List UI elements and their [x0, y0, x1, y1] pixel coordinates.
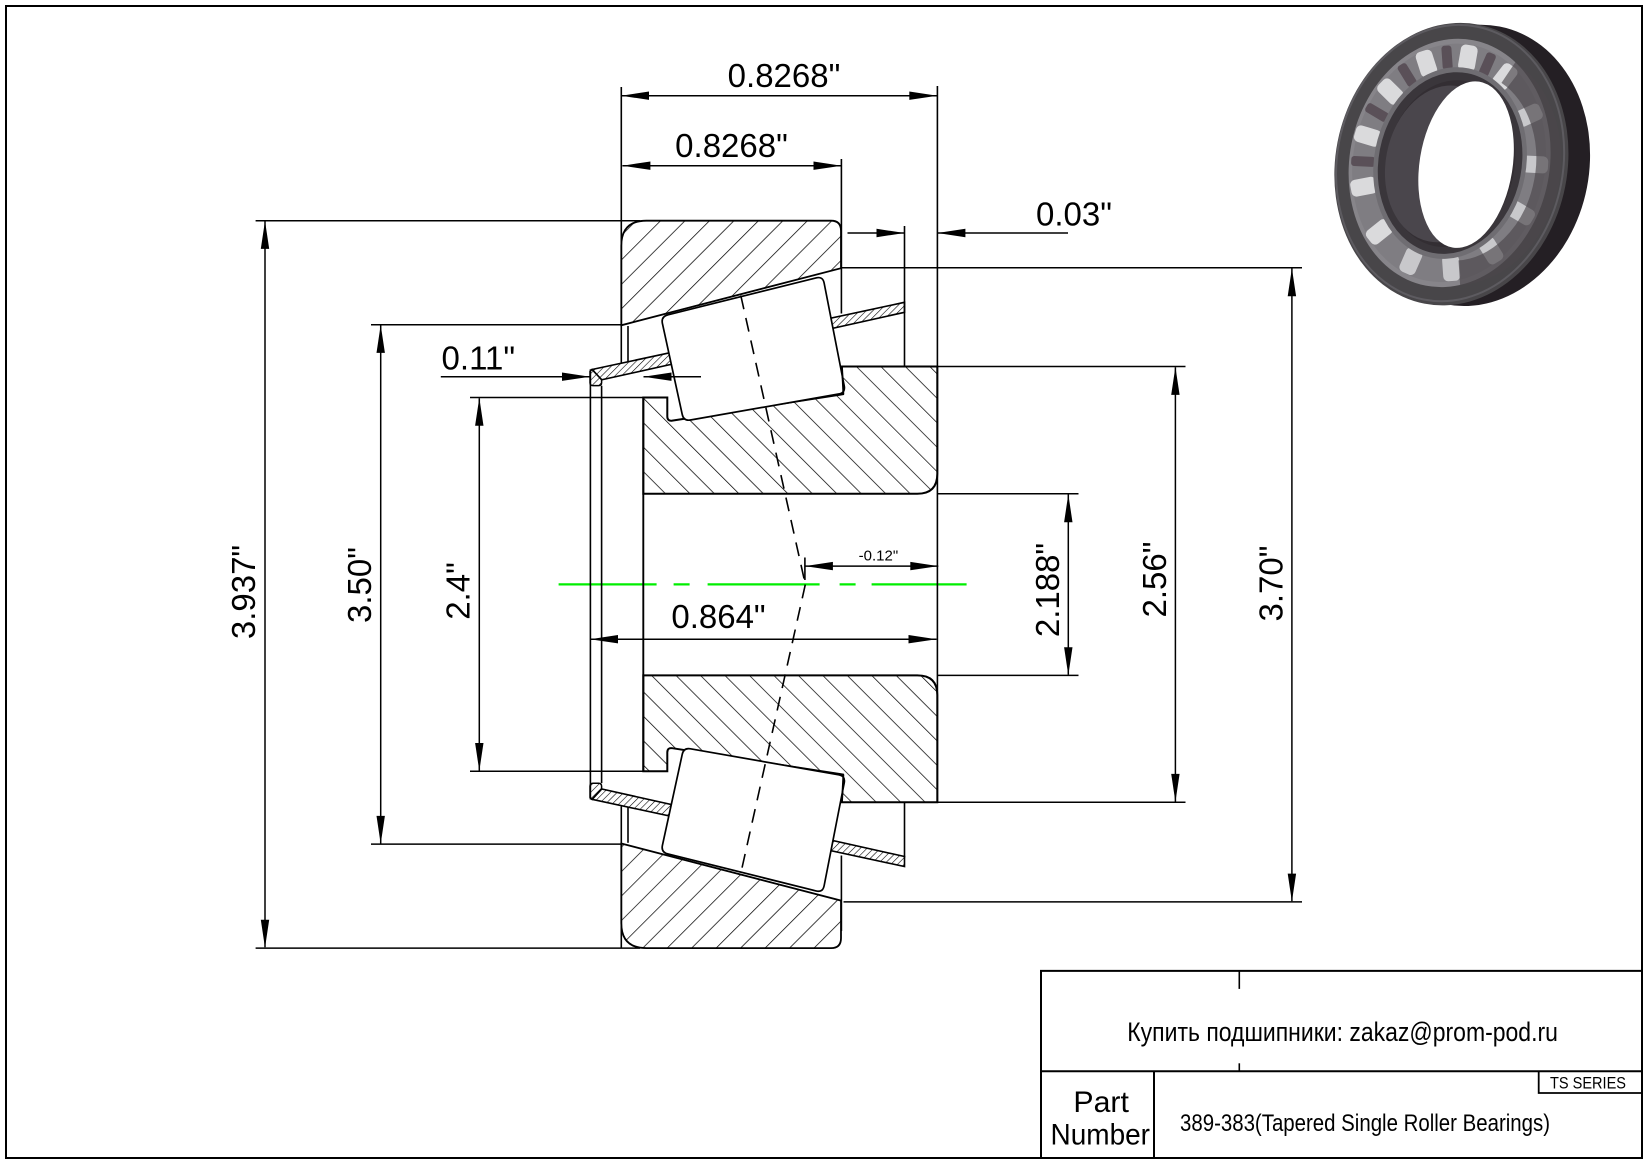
svg-text:0.8268": 0.8268" — [675, 127, 788, 164]
svg-text:2.4": 2.4" — [440, 562, 477, 620]
svg-text:3.50": 3.50" — [341, 547, 378, 623]
svg-text:2.56": 2.56" — [1136, 542, 1173, 618]
svg-text:-0.12": -0.12" — [859, 548, 899, 565]
svg-text:0.03": 0.03" — [1036, 196, 1112, 233]
svg-text:389-383(Tapered Single Roller: 389-383(Tapered Single Roller Bearings) — [1180, 1110, 1550, 1137]
svg-text:TS SERIES: TS SERIES — [1550, 1075, 1626, 1093]
svg-text:3.70": 3.70" — [1253, 546, 1290, 622]
svg-text:Купить подшипники: zakaz@prom-: Купить подшипники: zakaz@prom-pod.ru — [1127, 1017, 1558, 1047]
svg-text:2.188": 2.188" — [1029, 543, 1066, 637]
svg-text:Part: Part — [1073, 1086, 1129, 1119]
svg-text:3.937": 3.937" — [225, 545, 262, 639]
svg-text:0.8268": 0.8268" — [728, 57, 841, 94]
svg-text:0.11": 0.11" — [442, 339, 516, 376]
svg-text:0.864": 0.864" — [671, 598, 765, 635]
svg-text:Number: Number — [1051, 1119, 1151, 1152]
